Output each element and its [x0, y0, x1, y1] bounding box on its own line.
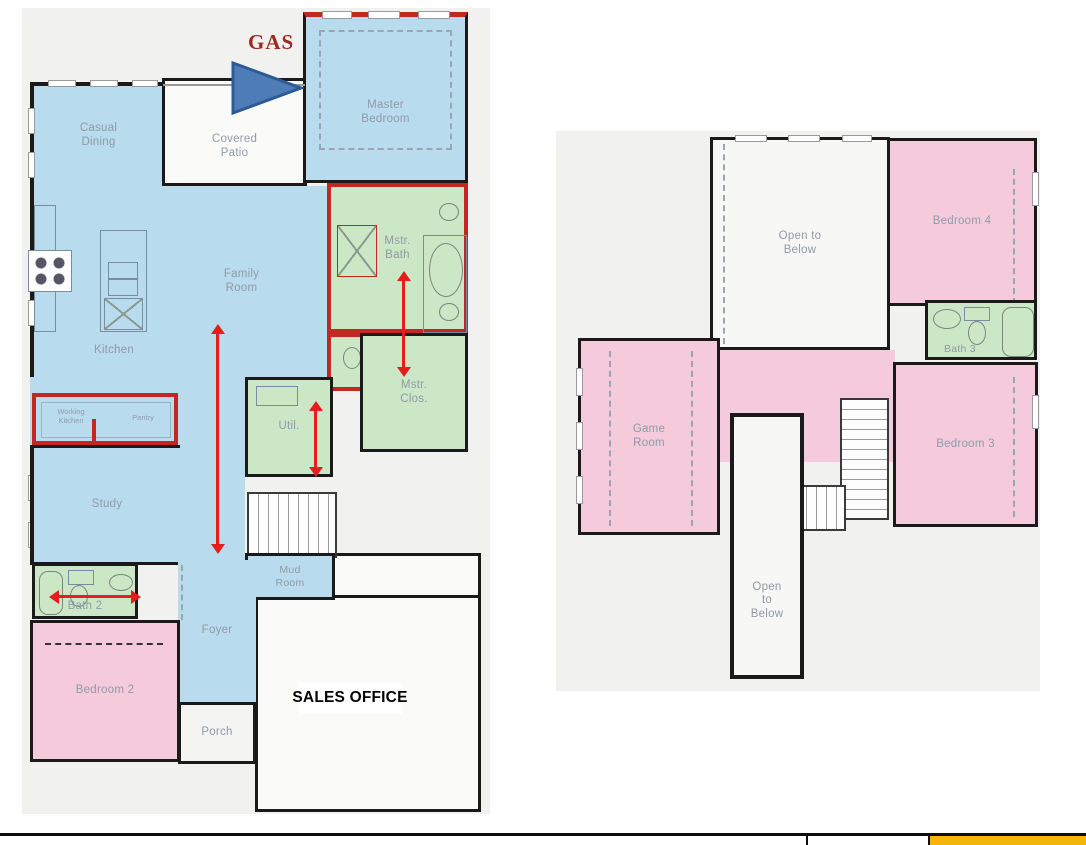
- window: [788, 135, 820, 142]
- bottom-table-row: [0, 833, 1086, 845]
- room-label-open-to-below-upper: Open to Below: [779, 230, 822, 257]
- toilet-icon: [968, 321, 986, 345]
- floorplan-page: Family Room Kitchen Casual Dining Covere…: [0, 0, 1086, 845]
- game-room-dashed: [609, 351, 611, 526]
- room-label-open-to-below-lower: Open to Below: [751, 581, 784, 622]
- room-open-to-below-lower: Open to Below: [730, 413, 804, 679]
- window: [576, 476, 583, 504]
- window: [1032, 395, 1039, 429]
- tub-icon: [1002, 307, 1034, 357]
- room-label-bedroom-4: Bedroom 4: [933, 215, 992, 229]
- bedroom-3-dashed: [1013, 377, 1015, 517]
- second-floor-plan: Open to Below Bedroom 4 Bath 3 Bedroom 3: [0, 0, 1086, 845]
- sink-icon: [964, 307, 990, 321]
- game-room-dashed: [691, 351, 693, 526]
- window: [1032, 172, 1039, 206]
- window: [576, 422, 583, 450]
- room-label-game-room: Game Room: [633, 423, 665, 450]
- room-bath-3: Bath 3: [925, 300, 1037, 360]
- table-cell-2: [808, 836, 928, 845]
- room-bedroom-4: Bedroom 4: [887, 138, 1037, 306]
- table-cell-1: [0, 836, 806, 845]
- open-below-dashed-edge: [723, 144, 725, 344]
- room-label-bedroom-3: Bedroom 3: [936, 438, 995, 452]
- table-cell-highlighted: [930, 836, 1086, 845]
- room-open-to-below-upper: Open to Below: [710, 137, 890, 350]
- window: [576, 368, 583, 396]
- window: [842, 135, 872, 142]
- sink-icon: [933, 309, 961, 329]
- room-game-room: Game Room: [578, 338, 720, 535]
- room-label-bath-3: Bath 3: [944, 343, 976, 355]
- window: [735, 135, 767, 142]
- room-bedroom-3: Bedroom 3: [893, 362, 1038, 527]
- stairs-second-floor: [840, 398, 889, 520]
- bedroom-4-dashed: [1013, 169, 1015, 304]
